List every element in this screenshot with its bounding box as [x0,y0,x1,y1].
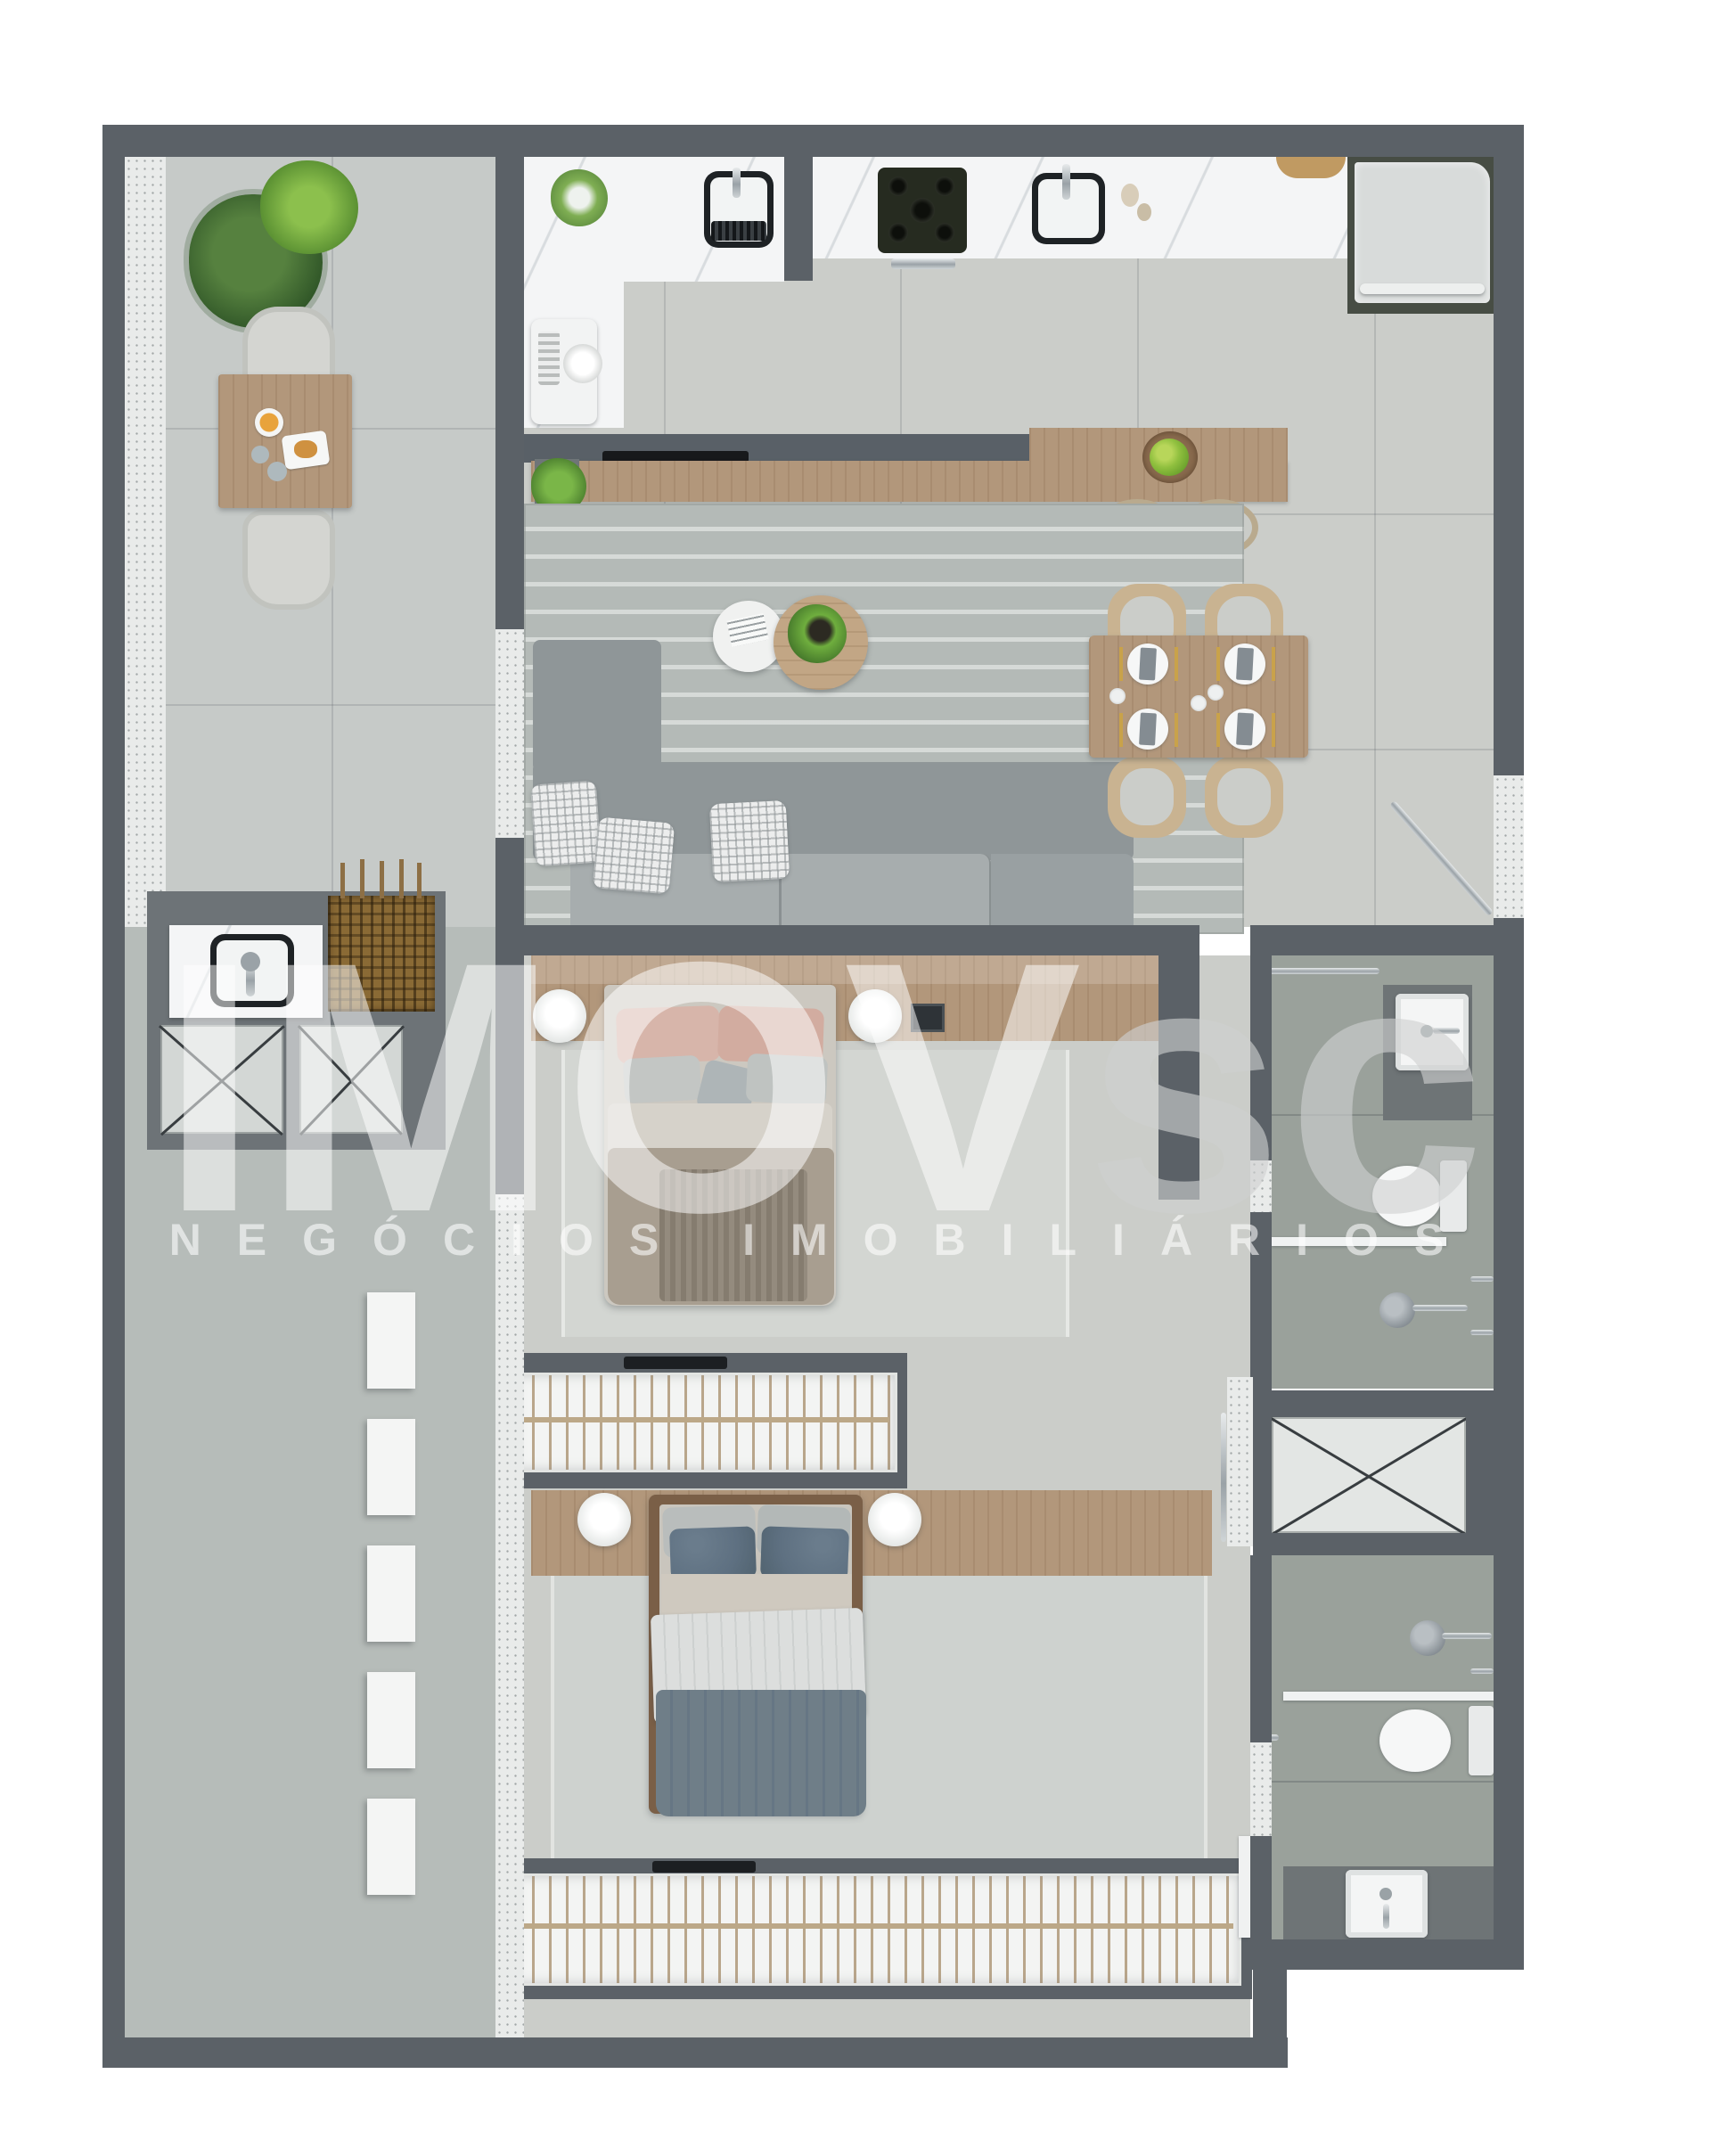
cooktop-burner [910,198,935,223]
sofa-pillow [530,781,602,867]
photo-frame [911,1004,945,1032]
entry-threshold [1494,775,1524,918]
wall-shelf [367,1419,415,1515]
wall-shelf [367,1672,415,1768]
refrigerator [1355,162,1490,303]
cooktop-burner [935,176,954,196]
coffee-table-plant [788,604,847,663]
balcony-window-strip [125,157,166,927]
bbq-skewer [380,861,384,898]
bathroom2-glass-partition [1283,1692,1494,1701]
bath-tile-joint [1272,1781,1494,1783]
bed1-headboard-shelf-edge [531,955,1199,984]
cutlery [1272,713,1275,747]
wall-bottom-bathroom [1248,1939,1524,1970]
cutlery [1119,647,1123,681]
sofa-pillow [593,816,675,894]
barbecue-grill [328,896,435,1012]
wall-bedroom1-right [1158,955,1199,1200]
bathroom1-shower-arm [1412,1305,1468,1311]
wall-right-lower [1494,918,1524,1970]
bathroom1-toilet-bowl [1372,1166,1442,1226]
wall-bottom-main [102,2037,1288,2068]
bathroom1-shower-bar [1470,1330,1494,1335]
coffee-machine-cup [563,344,602,383]
wardrobe2-hangers [512,1873,1241,1986]
saucer [251,446,269,463]
bed2-lamp [868,1493,921,1546]
bbq-skewer [399,859,404,898]
balcony-tile-joint [125,704,495,706]
bathroom1-toilet-tank [1440,1160,1467,1232]
dinner-plate [1127,709,1168,750]
cutlery [1119,713,1123,747]
wall-kitchen-pillar [784,157,813,281]
sofa-pillow [709,800,790,882]
bed2-pillow-blue [669,1526,757,1580]
wall-living-bedroom1 [495,925,1199,955]
wicker-chair [242,510,335,610]
wall-shaft-bottom [1253,1533,1494,1555]
wardrobe1-rail [515,1417,889,1422]
wardrobe1-hangers [512,1373,897,1472]
leaf-plant [260,160,358,254]
dinner-plate [1224,644,1265,685]
cooktop-burner [935,223,954,242]
dining-chair [1205,756,1283,838]
cutlery [1272,647,1275,681]
bathroom1-door-threshold [1250,1160,1272,1212]
saucer [267,462,287,481]
cooktop-burner [888,223,908,242]
napkin [1139,713,1157,746]
laundry-faucet-head [241,952,260,971]
bed1-blanket [659,1169,807,1301]
dinner-plate [1224,709,1265,750]
dinner-plate [1127,644,1168,685]
floor-joint [1374,258,1376,927]
coffee-machine-slot [538,332,560,385]
drinking-glass [1208,685,1224,701]
wall-top [102,125,1524,157]
bathroom2-shower-bar [1470,1668,1494,1674]
bathroom2-shower-head [1410,1620,1445,1656]
wall-shelf [367,1799,415,1895]
bbq-skewer [417,863,422,898]
cutlery [1216,713,1220,747]
wall-bathroom2-left-a [1250,1555,1272,1742]
bathroom1-glass-partition [1272,1237,1446,1246]
bed1-pillow-gray [746,1053,829,1106]
bathroom1-towel-bar [1255,968,1379,974]
wall-shaft-right [1466,1390,1494,1555]
dining-chair-seat [1217,768,1271,825]
bedroom1-tv [624,1357,727,1369]
bathroom2-door-leaf [1239,1836,1250,1938]
counter-plant [551,169,608,226]
bathroom1-shower-bar [1470,1276,1494,1282]
refrigerator-handle [1360,283,1485,294]
soap-dish [1121,184,1139,207]
corridor-glass-partition [495,1194,524,2037]
floor-plan: IMOVsc NEGÓCIOS IMOBILIÁRIOS [0,0,1711,2156]
napkin [1139,648,1157,681]
wardrobe2-rail [515,1923,1233,1929]
bed1-lamp [533,989,586,1043]
bed2-pillow-blue [760,1526,849,1580]
bbq-skewer [360,859,364,898]
green-apples [1150,439,1189,476]
wall-bathroom1-left-a [1250,955,1272,1160]
coffee-cup [255,408,283,437]
bathroom1-sink-drain [1420,1025,1433,1037]
bathroom2-toilet-tank [1469,1706,1494,1775]
oven-handle [891,258,955,269]
dining-chair [1108,756,1186,838]
cutting-board [1276,157,1346,178]
tv-console [524,434,1029,463]
cutlery [1175,713,1178,747]
wall-shelf [367,1545,415,1642]
napkin [1236,648,1254,681]
wall-bathroom2-left-b [1250,1836,1272,1939]
wall-shelf [367,1292,415,1389]
cooktop-burner [888,176,908,196]
bathroom2-door-threshold [1250,1742,1272,1836]
balcony-sliding-door [495,629,524,838]
kitchen-faucet-1 [733,168,741,198]
drinking-glass [1191,695,1207,711]
soap-dish [1137,203,1151,221]
cutlery [1216,647,1220,681]
sofa-chaise [533,640,661,772]
dining-chair-seat [1120,768,1174,825]
bbq-skewer [340,863,345,898]
wall-bathroom1-top [1250,925,1524,955]
bed1-lamp [848,989,902,1043]
wall-bathroom1-left-b [1250,1212,1272,1390]
bathroom2-toilet-bowl [1379,1709,1451,1772]
kitchen-faucet-2 [1062,164,1070,200]
bathroom2-sink-drain [1379,1888,1392,1900]
bedroom2-door-handle [1221,1413,1226,1542]
cutlery [1175,647,1178,681]
wall-shaft-left [1253,1390,1272,1555]
wall-left [102,125,125,2068]
bed1-pillow-pink [616,1005,721,1064]
bed2-lamp [577,1493,631,1546]
wall-shaft-top [1253,1390,1494,1417]
wall-balcony-divider-lower [495,838,524,1194]
bathroom1-faucet [1433,1028,1460,1034]
wall-right-upper [1494,125,1524,775]
bathroom2-shower-arm [1442,1633,1492,1639]
kitchen-sink-1-drainboard [711,221,766,241]
bedroom2-sliding-door [1227,1377,1253,1546]
drinking-glass [1109,688,1126,704]
bed2-duvet [656,1690,866,1816]
wall-balcony-divider-upper [495,157,524,629]
napkin [1236,713,1254,746]
bed1-pillow-gray [623,1055,701,1103]
croissant [294,440,317,458]
bathroom2-faucet [1383,1904,1389,1929]
bedroom2-tv [652,1861,756,1873]
bathroom1-shower-head [1379,1292,1415,1328]
